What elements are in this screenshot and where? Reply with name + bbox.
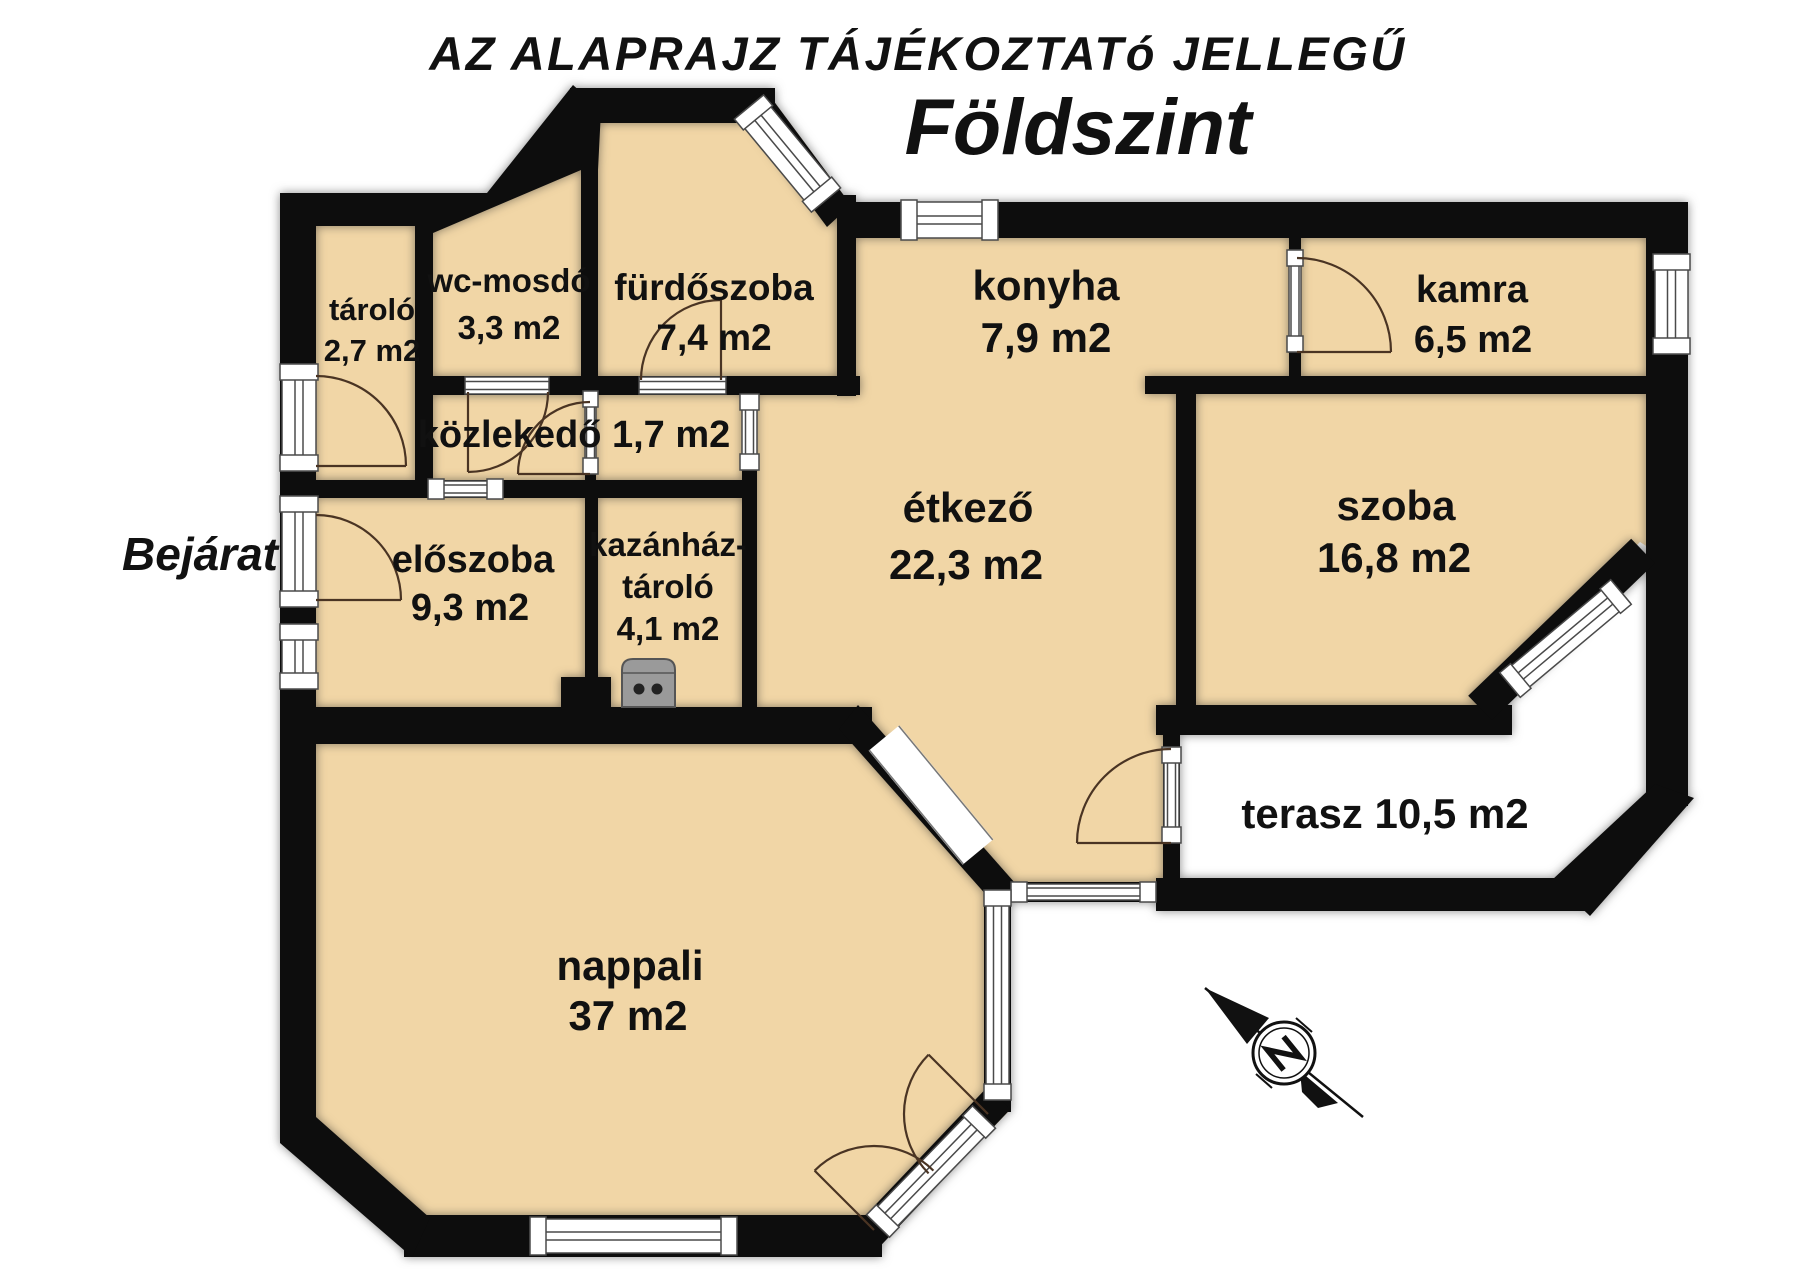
svg-text:terasz 10,5 m2: terasz 10,5 m2 (1241, 790, 1528, 837)
svg-text:wc-mosdó: wc-mosdó (426, 262, 590, 299)
svg-text:fürdőszoba: fürdőszoba (614, 267, 814, 308)
svg-text:37 m2: 37 m2 (568, 992, 687, 1039)
svg-text:7,4 m2: 7,4 m2 (656, 317, 771, 358)
svg-text:6,5 m2: 6,5 m2 (1414, 319, 1532, 361)
svg-text:kamra: kamra (1416, 269, 1529, 311)
svg-text:7,9 m2: 7,9 m2 (981, 314, 1112, 361)
svg-text:kazánház-: kazánház- (589, 526, 747, 563)
svg-text:9,3 m2: 9,3 m2 (411, 587, 529, 629)
svg-text:előszoba: előszoba (392, 539, 555, 581)
svg-text:nappali: nappali (556, 942, 703, 989)
svg-text:konyha: konyha (972, 262, 1120, 309)
svg-text:tároló: tároló (622, 568, 714, 605)
svg-text:2,7 m2: 2,7 m2 (324, 333, 421, 368)
svg-text:étkező: étkező (903, 484, 1034, 531)
svg-text:Bejárat: Bejárat (122, 528, 280, 580)
svg-text:közlekedő 1,7 m2: közlekedő 1,7 m2 (418, 414, 731, 456)
svg-text:tároló: tároló (329, 292, 415, 327)
svg-text:3,3 m2: 3,3 m2 (458, 309, 561, 346)
svg-text:szoba: szoba (1336, 482, 1456, 529)
svg-text:AZ ALAPRAJZ TÁJÉKOZTATó JELLEG: AZ ALAPRAJZ TÁJÉKOZTATó JELLEGŰ (428, 27, 1406, 80)
svg-text:16,8 m2: 16,8 m2 (1317, 534, 1471, 581)
svg-text:Földszint: Földszint (905, 82, 1255, 171)
svg-text:4,1 m2: 4,1 m2 (617, 610, 720, 647)
svg-text:22,3 m2: 22,3 m2 (889, 541, 1043, 588)
